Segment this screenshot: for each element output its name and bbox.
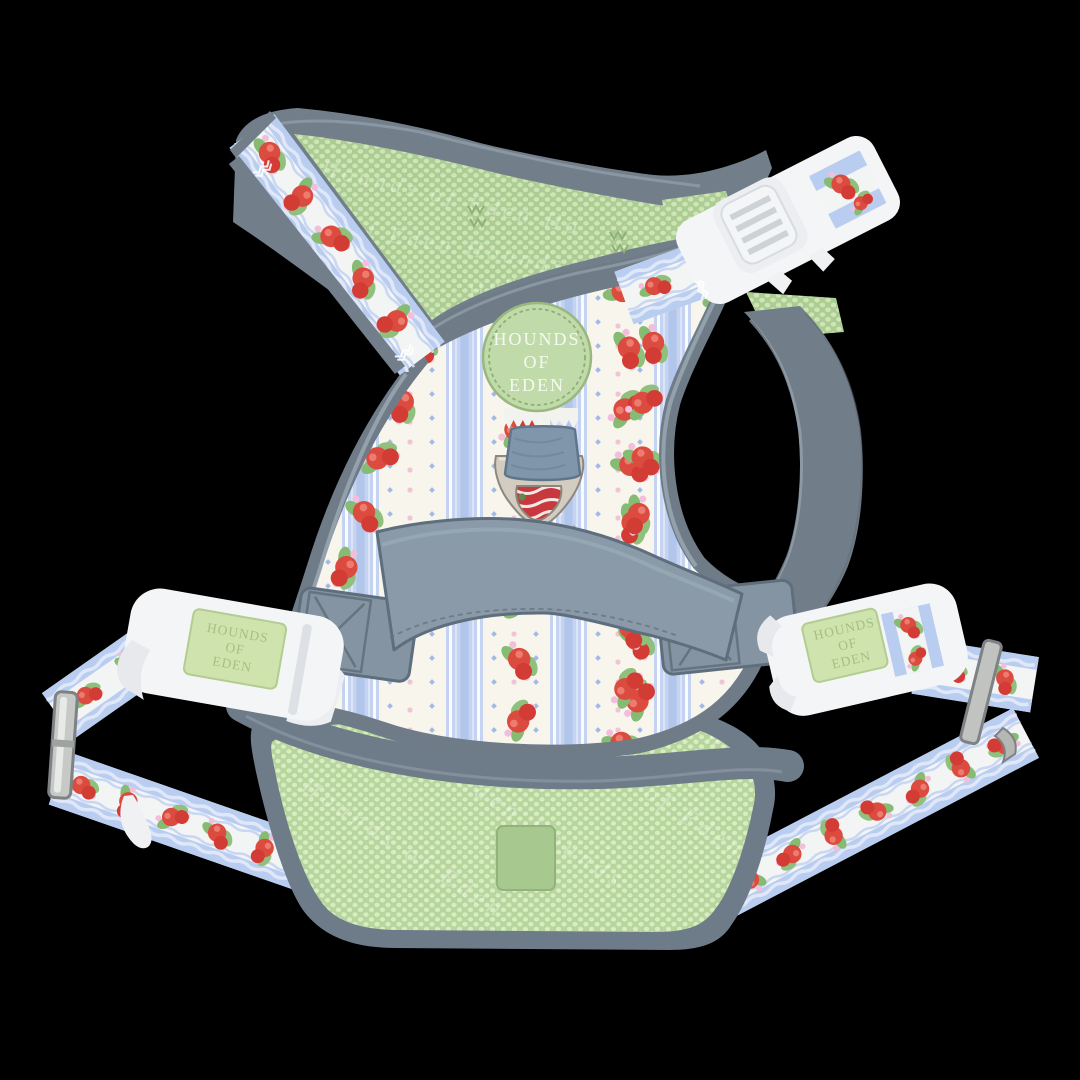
svg-text:HOUNDS: HOUNDS <box>493 329 580 349</box>
svg-text:OF: OF <box>523 352 550 372</box>
svg-text:EDEN: EDEN <box>509 375 565 395</box>
